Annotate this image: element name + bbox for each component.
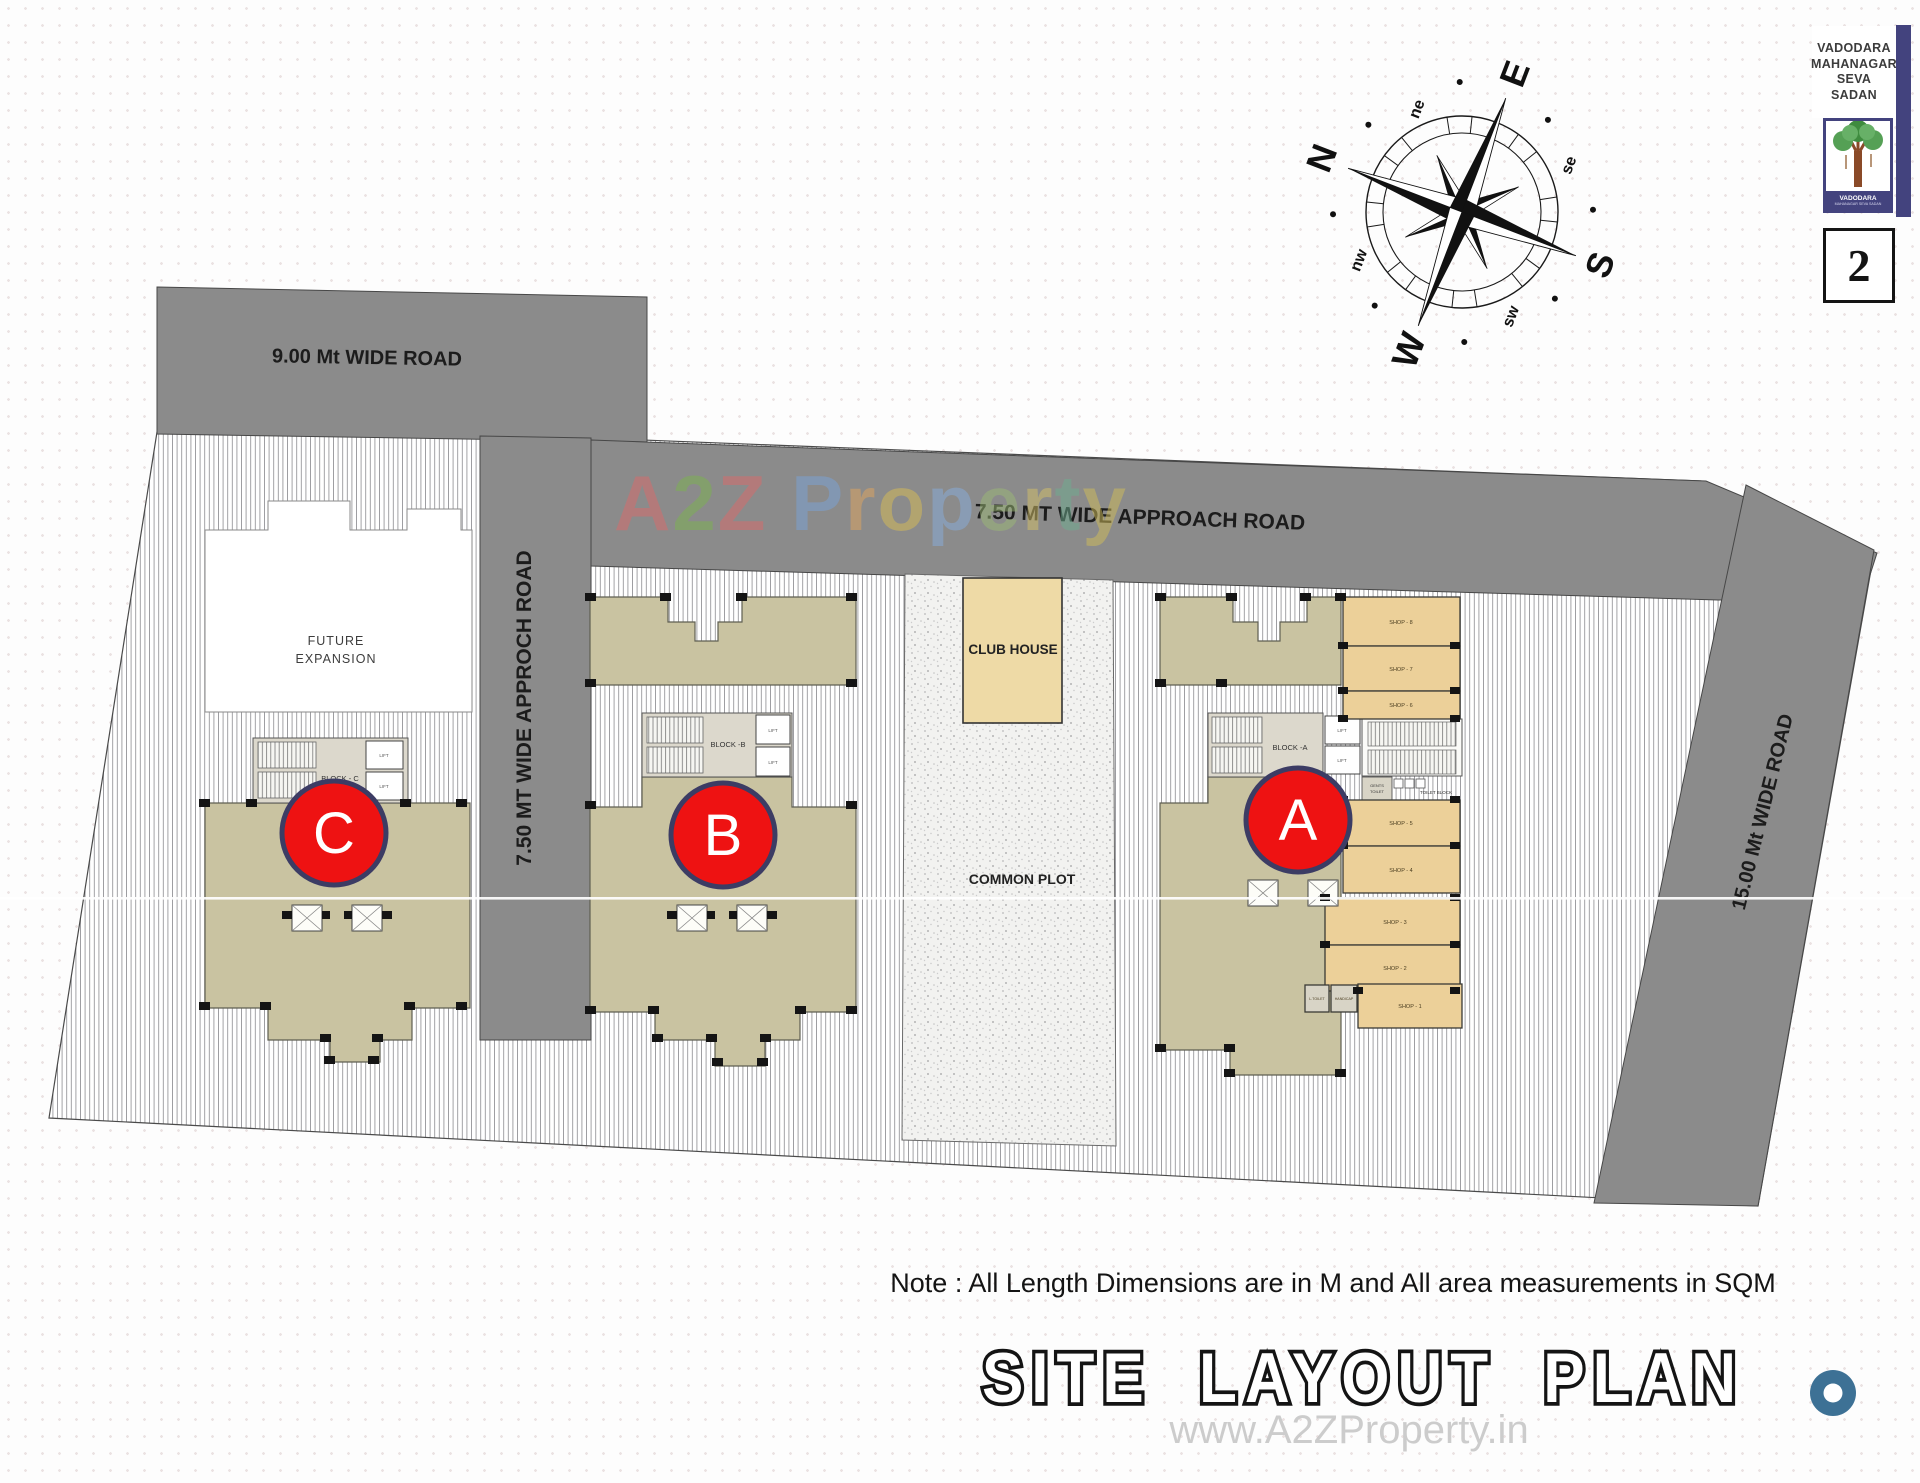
watermark-letter: y <box>1083 458 1128 549</box>
block-b-stair-flight <box>647 717 703 743</box>
watermark-letter: p <box>927 458 977 549</box>
shop-label: SHOP - 2 <box>1383 966 1406 972</box>
road-label-approach-vertical: 7.50 MT WIDE APPROCH ROAD <box>513 550 536 865</box>
seal-caption-line1: VADODARA <box>1839 195 1876 202</box>
authority-line: SEVA <box>1837 72 1871 88</box>
site-plan-drawing: 9.00 Mt WIDE ROAD 7.50 MT WIDE APPROACH … <box>0 0 1920 1483</box>
block-b-badge-letter: B <box>704 803 743 868</box>
sheet-number: 2 <box>1848 239 1871 292</box>
shop-label: SHOP - 8 <box>1389 620 1412 626</box>
block-a-lift-label: LIFT <box>1337 728 1347 733</box>
watermark-letter: r <box>1022 458 1054 549</box>
authority-line: SADAN <box>1831 88 1877 104</box>
l-toilet-label: L.TOILET <box>1309 997 1325 1001</box>
seal-caption-line2: MAHANAGAR SEVA SADAN <box>1835 202 1882 207</box>
block-b-lift-label: LIFT <box>768 760 778 765</box>
shop-label: SHOP - 4 <box>1389 868 1412 874</box>
block-c-lift-label: LIFT <box>379 753 389 758</box>
future-expansion-label-2: EXPANSION <box>295 652 376 666</box>
shop-label: SHOP - 5 <box>1389 821 1412 827</box>
toilet-block-label: TOILET BLOCK <box>1420 790 1452 795</box>
logo-blue-strip <box>1896 25 1911 217</box>
block-c-stair-flight <box>258 742 316 768</box>
compass-rose: N E S W ne se sw nw <box>1243 1 1676 426</box>
shops-stair-flight <box>1368 750 1456 774</box>
watermark-letter: r <box>845 458 877 549</box>
site-layout-plan-page: { "colors": { "road_gray": "#8b8b8b", "b… <box>0 0 1920 1483</box>
shop-label: SHOP - 1 <box>1398 1004 1421 1010</box>
block-a: LIFT LIFT BLOCK -A GENTS TOILET TOILET B… <box>1155 593 1462 1077</box>
bottom-watermark: www.A2ZProperty.in <box>1168 1408 1528 1452</box>
authority-line: VADODARA <box>1817 41 1891 57</box>
future-expansion-label-1: FUTURE <box>308 634 365 648</box>
block-a-badge-letter: A <box>1279 788 1318 853</box>
watermark-letter: Z <box>718 458 768 549</box>
watermark-letter: P <box>791 458 845 549</box>
compass-cardinal-blades <box>1304 54 1619 369</box>
watermark-letter: e <box>977 458 1022 549</box>
block-a-stair-flight <box>1212 717 1262 743</box>
block-a-stair-flight <box>1212 747 1262 773</box>
watermark-letter <box>767 458 791 549</box>
watermark-letter: A <box>614 458 672 549</box>
scan-artifact-line <box>0 897 1920 900</box>
block-c-badge-letter: C <box>313 801 355 866</box>
shops-stair-flight <box>1368 722 1456 746</box>
tree-icon <box>1826 121 1890 192</box>
block-a-label: BLOCK -A <box>1272 743 1307 752</box>
gents-toilet-label-1: GENTS <box>1370 783 1384 788</box>
compass-ne-label: ne <box>1406 97 1429 121</box>
authority-seal: VADODARA MAHANAGAR SEVA SADAN <box>1823 118 1893 213</box>
compass-nw-label: nw <box>1347 246 1371 273</box>
shop-label: SHOP - 3 <box>1383 920 1406 926</box>
gents-toilet-label-2: TOILET <box>1370 789 1384 794</box>
watermark-letter: 2 <box>672 458 717 549</box>
block-a-lift-label: LIFT <box>1337 758 1347 763</box>
block-b-stair-flight <box>647 747 703 773</box>
authority-line: MAHANAGAR <box>1811 57 1897 73</box>
handicap-label: HANDICAP <box>1335 997 1354 1001</box>
future-expansion-area <box>205 501 472 712</box>
compass-e-label: E <box>1491 55 1538 92</box>
compass-sw-label: sw <box>1500 303 1524 330</box>
club-house-label: CLUB HOUSE <box>968 642 1057 657</box>
seal-caption: VADODARA MAHANAGAR SEVA SADAN <box>1826 191 1890 210</box>
urinal-stalls <box>1394 779 1425 788</box>
compass-w-label: W <box>1383 327 1433 373</box>
common-plot-label: COMMON PLOT <box>969 871 1076 887</box>
road-label-9m: 9.00 Mt WIDE ROAD <box>272 345 462 370</box>
block-c-lift-label: LIFT <box>379 784 389 789</box>
block-b-lift-label: LIFT <box>768 728 778 733</box>
page-title: SITE LAYOUT PLAN <box>982 1339 1744 1418</box>
compass-s-label: S <box>1576 246 1623 283</box>
shop-label: SHOP - 7 <box>1389 667 1412 673</box>
watermark-letter: t <box>1055 458 1083 549</box>
authority-name-box: VADODARA MAHANAGAR SEVA SADAN <box>1812 26 1896 118</box>
block-b-label: BLOCK -B <box>710 740 745 749</box>
compass-n-label: N <box>1298 139 1346 178</box>
shop-label: SHOP - 6 <box>1389 703 1412 709</box>
note-text: Note : All Length Dimensions are in M an… <box>890 1268 1775 1298</box>
compass-se-label: se <box>1558 154 1580 177</box>
center-watermark: A2Z Property <box>614 458 1128 549</box>
watermark-letter: o <box>877 458 927 549</box>
logo-donut-hole <box>1824 1384 1843 1403</box>
block-b: LIFT LIFT BLOCK -B B <box>585 593 857 1066</box>
sheet-number-box: 2 <box>1823 228 1895 303</box>
